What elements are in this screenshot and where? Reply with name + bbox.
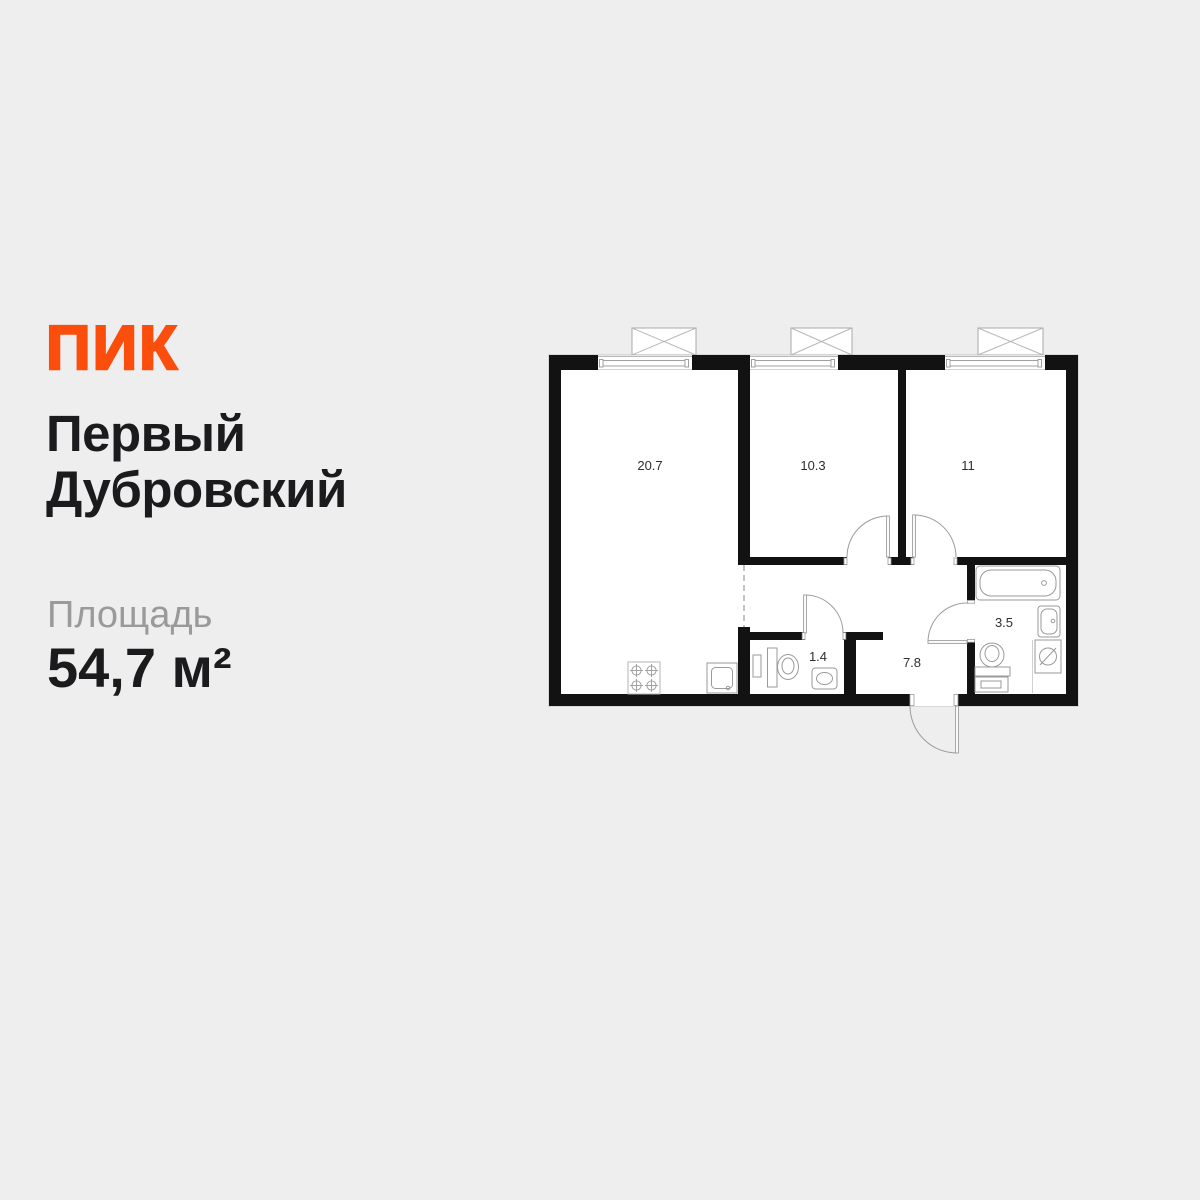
room-label-bedroom2: 11: [961, 458, 975, 473]
project-title-line1: Первый: [46, 405, 245, 462]
floorplan: 20.7 10.3 11 1.4 7.8 3.5: [540, 318, 1090, 768]
room-label-bedroom1: 10.3: [800, 458, 825, 473]
area-value: 54,7 м²: [47, 640, 232, 696]
toilet-sink-icon: [812, 668, 837, 689]
balcony-box-icon: [632, 328, 1043, 355]
bathtub-icon: [976, 566, 1060, 600]
entrance-door-icon: [910, 694, 958, 753]
room-label-hallway: 7.8: [903, 655, 921, 670]
bathroom-sink-icon: [1038, 606, 1060, 637]
pik-logo: ПИК: [46, 318, 179, 380]
room-label-living: 20.7: [637, 458, 662, 473]
stove-icon: [628, 662, 660, 694]
project-title-line2: Дубровский: [46, 461, 347, 518]
room-label-toilet: 1.4: [809, 649, 827, 664]
area-label: Площадь: [47, 596, 212, 634]
window-icon: [598, 355, 1045, 370]
kitchen-sink-icon: [707, 663, 737, 693]
listing-card: ПИК ПервыйДубровский Площадь 54,7 м²: [0, 0, 1200, 1200]
project-title: ПервыйДубровский: [46, 406, 347, 518]
room-label-bathroom: 3.5: [995, 615, 1013, 630]
